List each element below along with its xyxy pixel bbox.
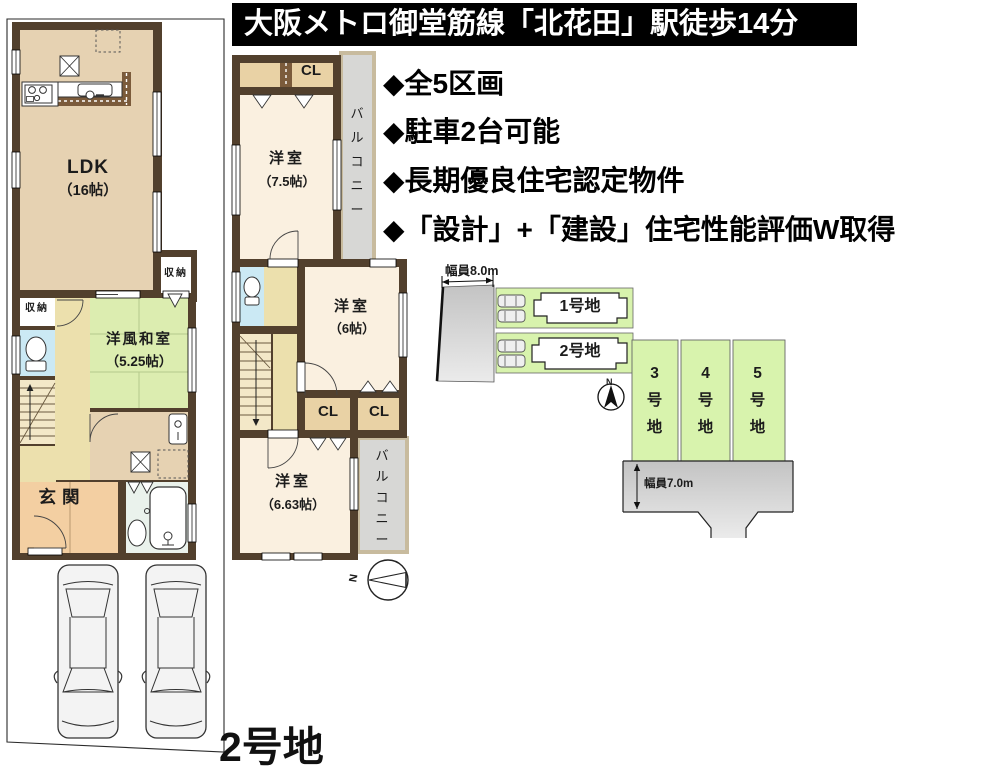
- storage-left-label: 収納: [18, 303, 56, 314]
- feature-item-2: ◆駐車2台可能: [383, 110, 560, 150]
- balcony-bottom-label: バルコニー: [374, 445, 390, 550]
- room-a-label: 洋室: [246, 151, 328, 168]
- banner-title: 大阪メトロ御堂筋線「北花田」駅徒歩14分: [232, 3, 857, 46]
- road-bottom: [623, 461, 793, 538]
- feature-item-1: ◆全5区画: [383, 62, 504, 102]
- compass-2f-icon: [368, 560, 408, 600]
- car-icon-small: [498, 295, 525, 307]
- closet-top-label: CL: [294, 63, 328, 80]
- washitsu-label: 洋風和室: [88, 332, 190, 348]
- road-width-8m-label: 幅員8.0m: [445, 264, 499, 278]
- car-icon-small: [498, 310, 525, 322]
- hallway-2f: [272, 334, 297, 430]
- room-c-label: 洋室: [252, 474, 334, 491]
- feature-item-4: ◆「設計」+「建設」住宅性能評価W取得: [383, 208, 895, 248]
- lot4-label: 4号地: [697, 360, 714, 441]
- toilet-icon-2f: [244, 277, 260, 305]
- room-a-size-label: （7.5帖）: [243, 175, 331, 190]
- washbasin-icon: [169, 414, 187, 444]
- room-b-size-label: （6帖）: [311, 322, 393, 337]
- hallway-1f: [55, 298, 90, 480]
- north-arrow-icon: [598, 384, 624, 410]
- room-b-label: 洋室: [311, 299, 393, 316]
- toilet-icon: [26, 337, 46, 371]
- room-c: [240, 438, 350, 553]
- lot5-label: 5号地: [749, 360, 766, 441]
- north-arrow-n-label: N: [606, 377, 613, 387]
- ldk-size-label: （16帖）: [38, 183, 138, 199]
- road-left: [437, 285, 494, 382]
- refrigerator-icon: [60, 56, 79, 76]
- lot1-label: 1号地: [541, 298, 619, 316]
- road-width-7m-label: 幅員7.0m: [644, 478, 693, 491]
- lot-caption: 2号地: [219, 713, 324, 768]
- lot2-label: 2号地: [541, 343, 619, 361]
- car-icon-small: [498, 340, 525, 352]
- ldk-label: LDK: [48, 157, 128, 178]
- storage-right-label: 収納: [158, 268, 194, 279]
- closet-1-label: CL: [311, 404, 345, 421]
- car-icon-small: [498, 355, 525, 367]
- car-icon: [142, 565, 210, 738]
- washitsu-size-label: （5.25帖）: [88, 354, 190, 369]
- stove-icon: [25, 85, 52, 103]
- car-icon: [54, 565, 122, 738]
- balcony-top-label: バルコニー: [349, 102, 365, 222]
- lot3-label: 3号地: [646, 360, 663, 441]
- room-c-size-label: （6.63帖）: [249, 498, 337, 513]
- washing-machine-icon: [131, 452, 150, 472]
- entrance-label: 玄関: [26, 488, 98, 508]
- feature-item-3: ◆長期優良住宅認定物件: [383, 159, 685, 199]
- closet-2-label: CL: [362, 404, 396, 421]
- flyer-page: 大阪メトロ御堂筋線「北花田」駅徒歩14分 ◆全5区画 ◆駐車2台可能 ◆長期優良…: [0, 0, 981, 768]
